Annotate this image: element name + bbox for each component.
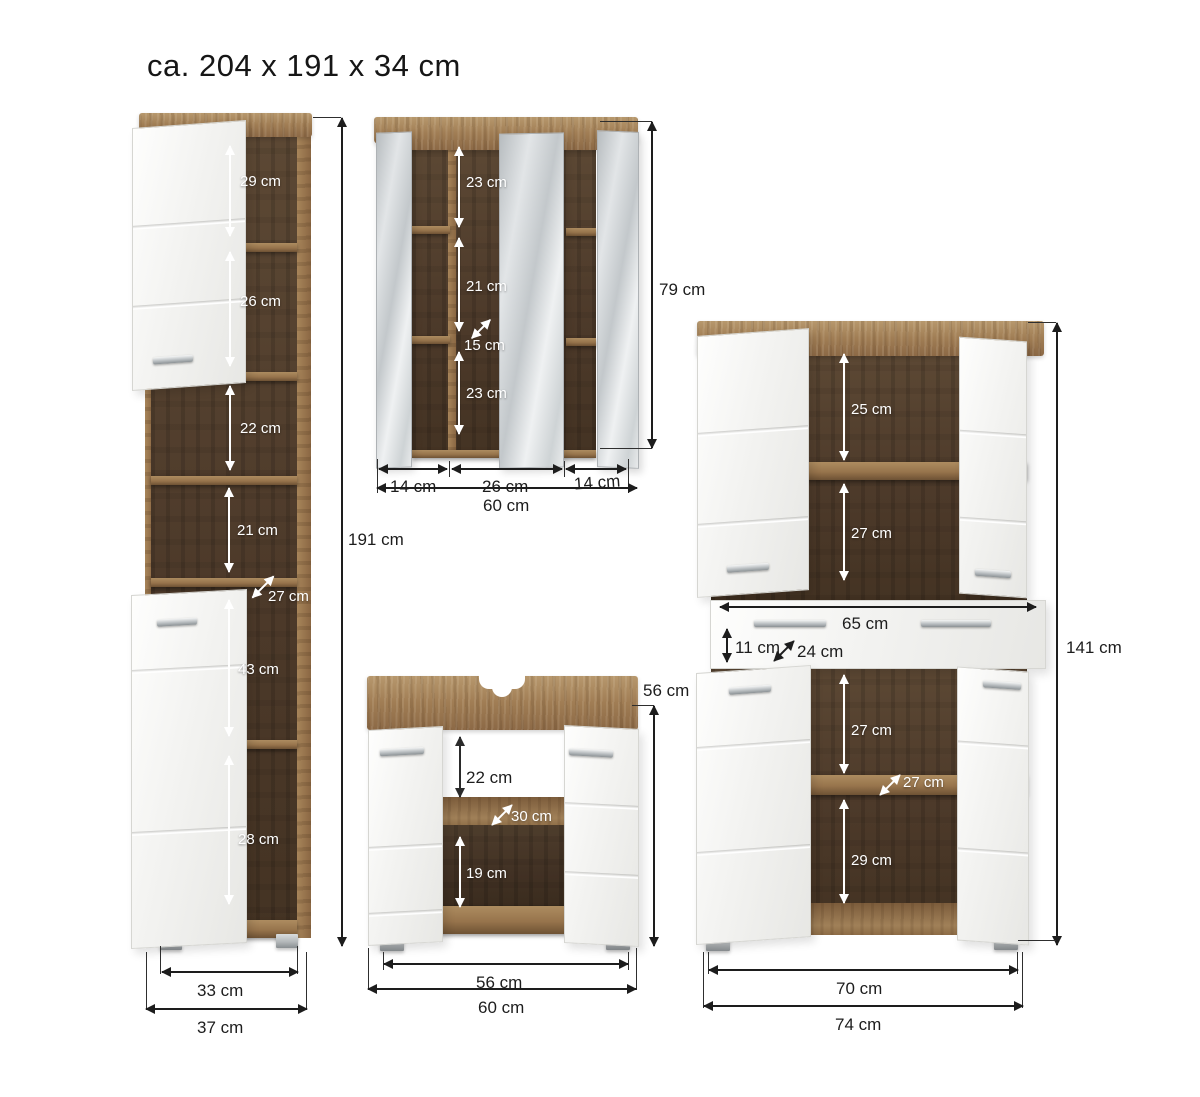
width-dimension-line xyxy=(704,1005,1023,1007)
door-seam xyxy=(960,516,1026,525)
compartment-dimension-arrow xyxy=(843,354,845,460)
door-seam xyxy=(960,429,1026,438)
drawer-width-dimension-line xyxy=(720,606,1036,608)
large-cabinet-upper-left-door xyxy=(697,328,809,598)
door-seam xyxy=(698,516,808,528)
dimension-label: 70 cm xyxy=(836,979,882,999)
dimension-label: 74 cm xyxy=(835,1015,881,1035)
door-handle xyxy=(983,680,1021,690)
large-cabinet-lower-left-door xyxy=(696,665,811,945)
height-dimension-line xyxy=(1056,323,1058,945)
dimension-label: 29 cm xyxy=(851,852,892,869)
dimension-label: 27 cm xyxy=(851,722,892,739)
drawer-height-dimension-arrow xyxy=(726,629,728,662)
door-seam xyxy=(958,847,1028,856)
width-dimension-line xyxy=(709,969,1018,971)
dimension-label: 27 cm xyxy=(903,774,944,791)
door-handle xyxy=(975,568,1011,578)
door-seam xyxy=(697,739,810,751)
door-seam xyxy=(958,741,1028,750)
large-cabinet-lower-right-door xyxy=(957,666,1029,945)
drawer-handle xyxy=(754,620,826,627)
compartment-dimension-arrow xyxy=(843,800,845,903)
large-cabinet-drawer xyxy=(710,600,1046,669)
extension-line xyxy=(1022,952,1023,1008)
door-seam xyxy=(697,844,810,856)
dimension-label: 25 cm xyxy=(851,401,892,418)
dimension-label: 141 cm xyxy=(1066,638,1122,658)
door-seam xyxy=(698,425,808,437)
large-cabinet: 25 cm 27 cm 27 cm 27 cm 29 cm 65 cm 11 c… xyxy=(0,0,1200,1097)
dimension-label: 27 cm xyxy=(851,525,892,542)
door-handle xyxy=(729,685,771,695)
compartment-dimension-arrow xyxy=(843,675,845,773)
furniture-dimension-diagram: ca. 204 x 191 x 34 cm 29 cm 26 cm 22 cm xyxy=(0,0,1200,1097)
compartment-dimension-arrow xyxy=(843,484,845,580)
large-cabinet-upper-right-door xyxy=(959,337,1027,599)
drawer-handle xyxy=(921,620,991,627)
dimension-label: 65 cm xyxy=(842,614,888,634)
extension-line xyxy=(1018,940,1056,941)
door-handle xyxy=(727,563,769,573)
dimension-label: 24 cm xyxy=(797,642,843,662)
extension-line xyxy=(703,952,704,1008)
